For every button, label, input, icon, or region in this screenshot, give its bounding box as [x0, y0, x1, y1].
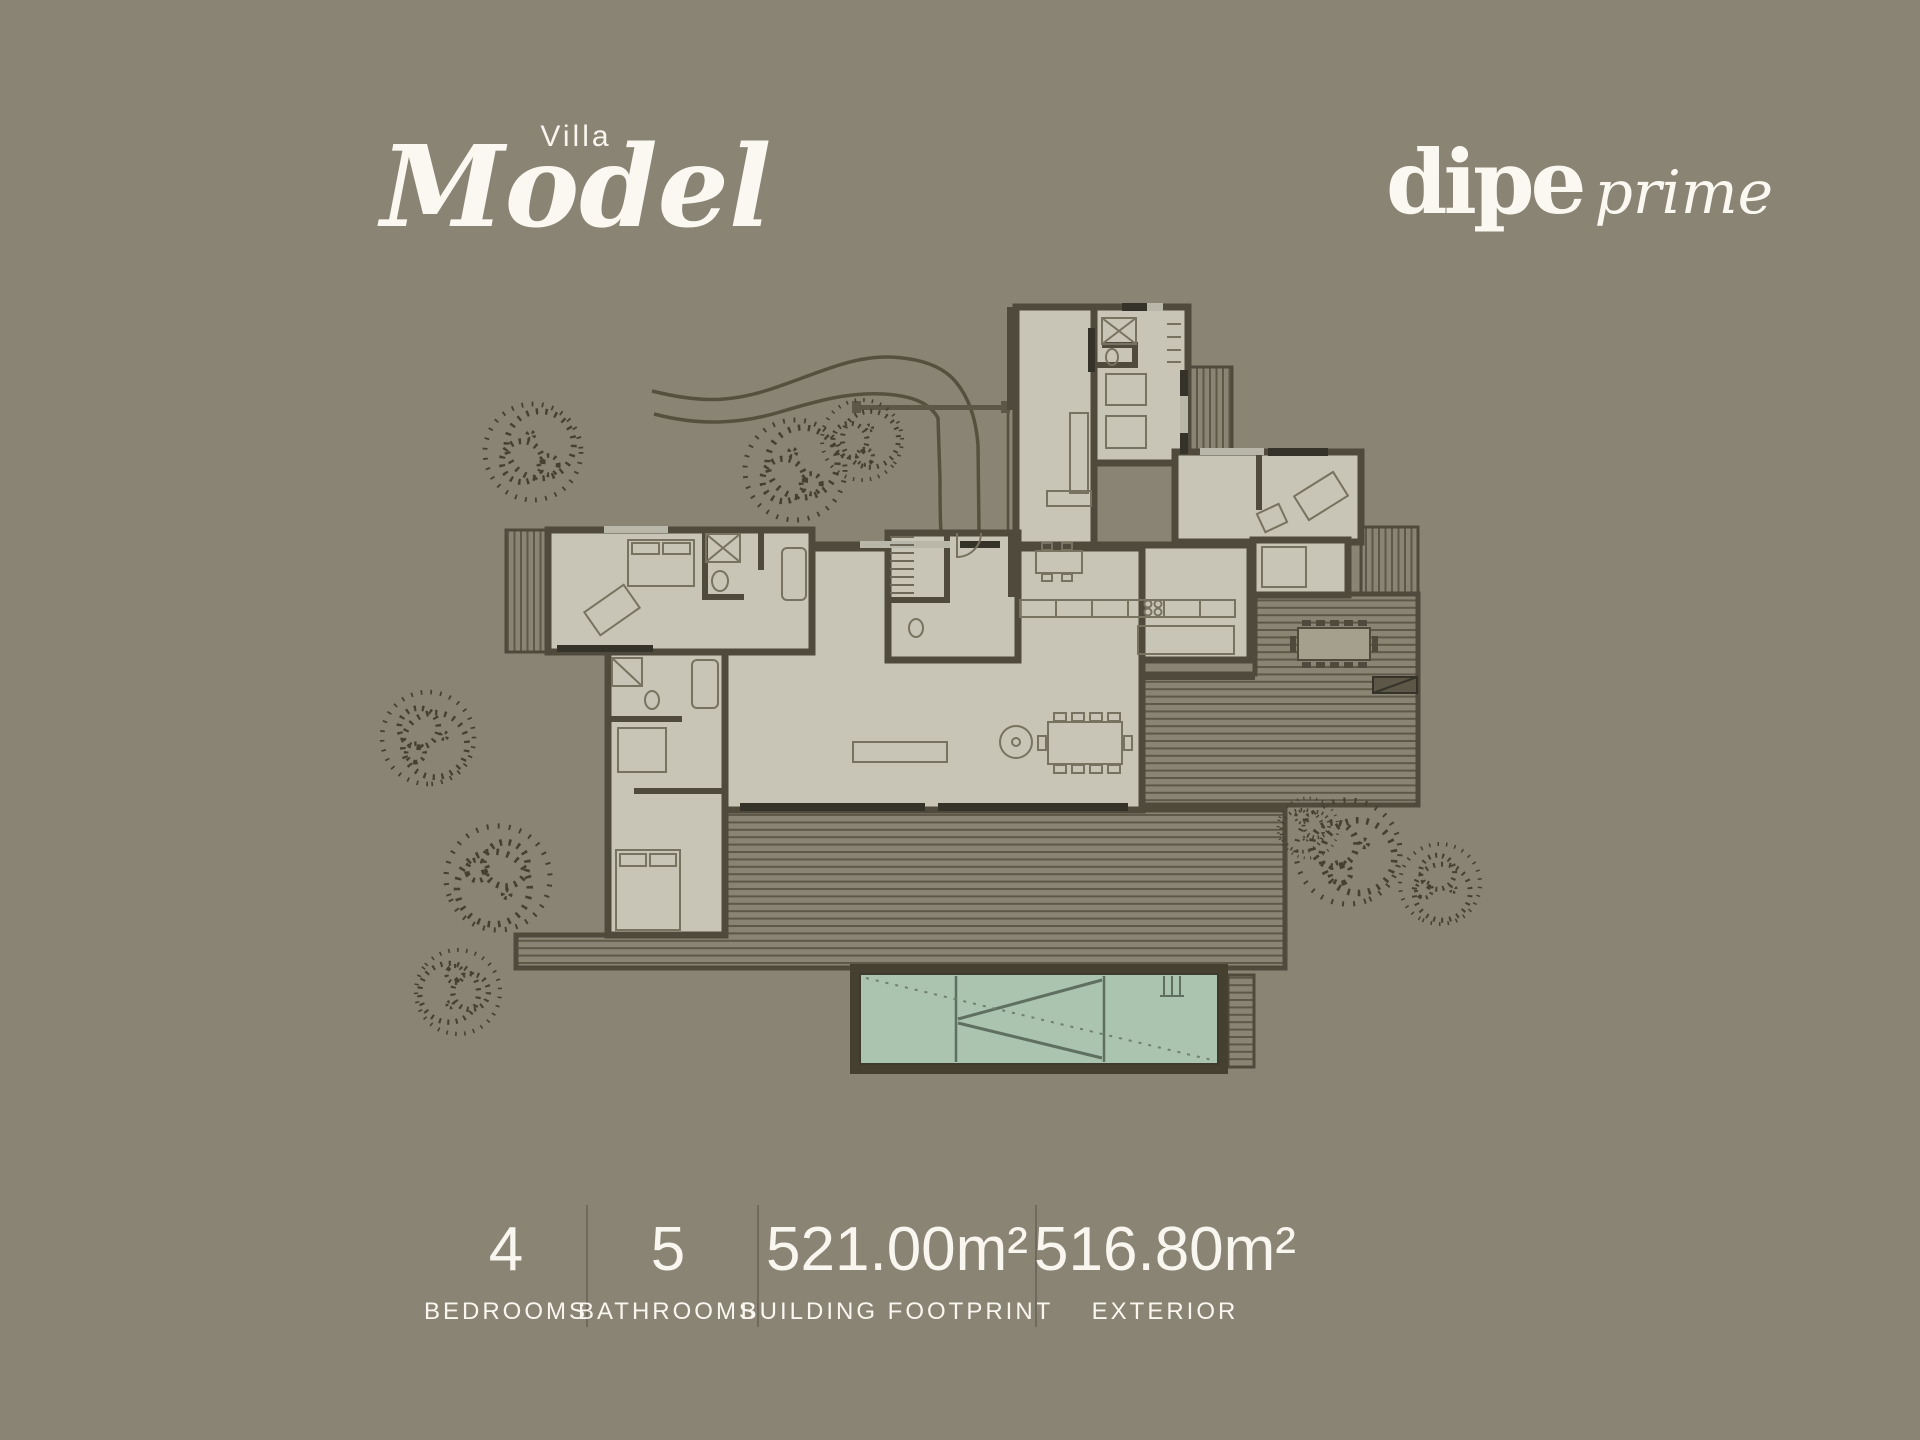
stat-building-footprint-value: 521.00m² — [741, 1218, 1054, 1282]
swimming-pool — [850, 964, 1228, 1074]
tree-icon — [485, 404, 581, 500]
tree-icon — [399, 933, 517, 1051]
stat-bathrooms-label: BATHROOMS — [578, 1298, 758, 1326]
stat-building-footprint: 521.00m² BUILDING FOOTPRINT — [741, 1218, 1054, 1326]
pool-ladder-icon — [1160, 976, 1184, 996]
stat-exterior: 516.80m² EXTERIOR — [1034, 1218, 1296, 1326]
room-right-upper — [1175, 452, 1361, 542]
deck-right-upper — [1361, 527, 1418, 593]
stat-bedrooms: 4 BEDROOMS — [424, 1218, 588, 1326]
deck-pool-side — [1228, 975, 1254, 1067]
stat-building-footprint-label: BUILDING FOOTPRINT — [741, 1298, 1054, 1326]
walkway — [1016, 307, 1094, 551]
stat-bathrooms-value: 5 — [578, 1218, 758, 1282]
tree-icon — [1385, 829, 1494, 938]
tree-icon — [745, 420, 845, 520]
deck-left — [506, 530, 548, 652]
stat-bathrooms: 5 BATHROOMS — [578, 1218, 758, 1326]
room-top-wing — [1093, 307, 1188, 463]
stat-bedrooms-label: BEDROOMS — [424, 1298, 588, 1326]
page: Villa Model dipe prime — [0, 0, 1920, 1440]
driveway-path — [652, 357, 1008, 533]
deck-top-wing — [1190, 367, 1232, 455]
stat-bedrooms-value: 4 — [424, 1218, 588, 1282]
tree-icon — [431, 811, 564, 944]
stat-exterior-value: 516.80m² — [1034, 1218, 1296, 1282]
stat-exterior-label: EXTERIOR — [1034, 1298, 1296, 1326]
left-wing — [548, 530, 812, 652]
tree-icon — [382, 692, 474, 784]
